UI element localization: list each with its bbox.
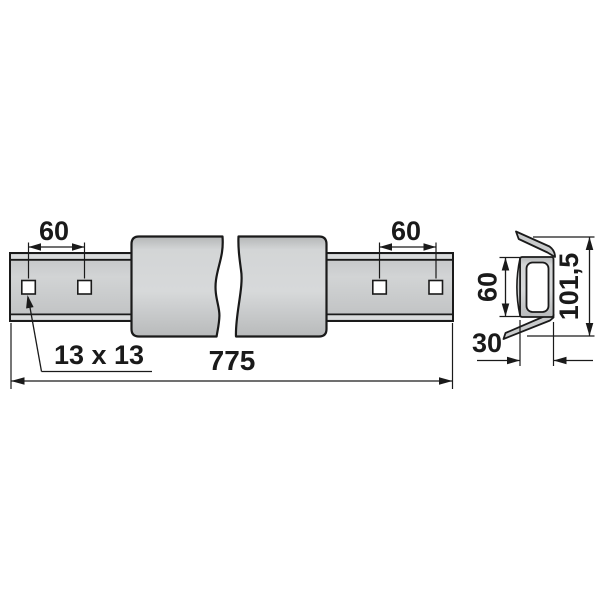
arrowhead-right (424, 243, 437, 251)
arrowhead-right (507, 357, 520, 365)
dim-label-length: 775 (209, 345, 256, 376)
section-front-bulge (517, 259, 520, 316)
dim-label-spacing-right: 60 (391, 216, 421, 246)
arrowhead-up (586, 237, 594, 250)
section-bottom-lip (504, 315, 554, 340)
section-inner-hollow (527, 263, 549, 313)
dim-label-section-total: 101,5 (554, 253, 584, 321)
square-hole-1 (22, 281, 36, 295)
square-hole-4 (429, 281, 443, 295)
sleeve-blocks (132, 237, 327, 337)
arrowhead-right (439, 377, 453, 385)
sleeve-left-block (132, 237, 223, 337)
sleeve-right-block (236, 237, 327, 337)
section-top-lip (516, 232, 555, 258)
arrowhead-down (586, 323, 594, 336)
dim-section-inner-height: 60 (473, 258, 523, 317)
cross-section-view (504, 232, 556, 340)
arrowhead-up (502, 258, 510, 271)
technical-drawing: 60 60 13 x 13 775 60 (0, 0, 600, 600)
rail-side-view (10, 253, 453, 321)
arrowhead-right (72, 243, 85, 251)
drawing-canvas: 60 60 13 x 13 775 60 (0, 0, 600, 600)
square-hole-2 (78, 281, 92, 295)
dim-label-section-width: 30 (472, 328, 502, 358)
square-hole-3 (373, 281, 387, 295)
arrowhead-down (502, 304, 510, 317)
arrowhead-left (11, 377, 25, 385)
dim-label-section-inner: 60 (473, 272, 503, 302)
arrowhead-left (554, 357, 567, 365)
dim-label-spacing-left: 60 (39, 216, 69, 246)
dim-label-hole-size: 13 x 13 (54, 340, 144, 370)
